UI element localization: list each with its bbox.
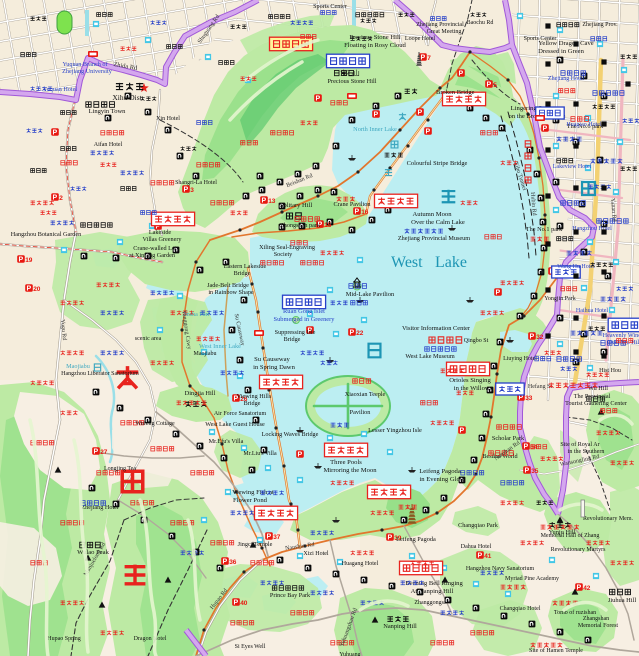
svg-text:Over the Calm Lake: Over the Calm Lake xyxy=(411,219,465,226)
svg-text:Villas Greenery: Villas Greenery xyxy=(143,236,183,243)
svg-text:Prince Bay Park: Prince Bay Park xyxy=(270,592,311,599)
svg-text:P: P xyxy=(373,112,378,119)
svg-text:P: P xyxy=(222,559,227,566)
svg-text:2: 2 xyxy=(59,195,63,202)
svg-text:P: P xyxy=(266,534,271,541)
svg-text:Leifeng Pagoda: Leifeng Pagoda xyxy=(419,468,461,475)
svg-text:Suppressing Isle: Suppressing Isle xyxy=(275,329,316,336)
svg-text:Bridge: Bridge xyxy=(284,336,301,343)
svg-text:P: P xyxy=(425,129,430,136)
svg-text:Zhejiang University: Zhejiang University xyxy=(62,68,113,75)
svg-text:37: 37 xyxy=(273,534,281,541)
svg-text:Floating in Rosy Cloud: Floating in Rosy Cloud xyxy=(344,42,406,49)
svg-text:in the Southern: in the Southern xyxy=(568,449,605,455)
svg-text:Xihu Dist.: Xihu Dist. xyxy=(112,93,143,102)
svg-text:P: P xyxy=(524,468,529,475)
svg-text:Memorial Hall of Zhang: Memorial Hall of Zhang xyxy=(541,532,600,539)
svg-text:Maojiabu: Maojiabu xyxy=(66,363,90,370)
svg-text:Zhangshan: Zhangshan xyxy=(583,616,609,622)
svg-text:5: 5 xyxy=(493,82,497,89)
svg-text:Jinsha Port: Jinsha Port xyxy=(183,312,210,318)
svg-text:Revolutionary Mem.: Revolutionary Mem. xyxy=(583,516,633,522)
svg-text:P: P xyxy=(315,96,320,103)
svg-text:Heavenly Wind: Heavenly Wind xyxy=(603,332,639,339)
svg-text:Wufeng Cottage: Wufeng Cottage xyxy=(135,420,175,427)
svg-text:Xin Hotel: Xin Hotel xyxy=(156,116,180,122)
svg-text:P: P xyxy=(93,449,98,456)
svg-text:Hangzhou Navy Sanatorium: Hangzhou Navy Sanatorium xyxy=(466,566,535,572)
svg-text:P: P xyxy=(183,187,188,194)
svg-text:at Xinfang Garden: at Xinfang Garden xyxy=(129,252,175,259)
svg-text:P: P xyxy=(459,428,464,435)
svg-text:P: P xyxy=(52,195,57,202)
svg-text:Zhanggongsi: Zhanggongsi xyxy=(414,600,446,606)
svg-text:in Evening Glow: in Evening Glow xyxy=(419,476,464,483)
svg-text:The Provincial: The Provincial xyxy=(574,393,611,400)
svg-text:Huagang Hotel: Huagang Hotel xyxy=(342,561,379,567)
svg-text:3: 3 xyxy=(190,187,194,194)
svg-text:Hangzhou Liberator Sanatorium: Hangzhou Liberator Sanatorium xyxy=(61,371,139,377)
svg-text:Revolutionary Martyrs: Revolutionary Martyrs xyxy=(551,547,606,553)
svg-text:Bridge: Bridge xyxy=(244,400,261,407)
svg-text:P: P xyxy=(233,600,238,607)
svg-text:Crane-walled Lot: Crane-walled Lot xyxy=(133,245,177,252)
svg-text:27: 27 xyxy=(100,449,108,456)
svg-text:Zhongshan park: Zhongshan park xyxy=(280,222,321,229)
svg-text:P: P xyxy=(18,257,23,264)
svg-text:Jingci Temple: Jingci Temple xyxy=(238,541,273,548)
svg-text:Mid-Lake Pavilion: Mid-Lake Pavilion xyxy=(346,291,395,298)
svg-text:33: 33 xyxy=(525,395,533,402)
svg-text:Tomb of ruzishan: Tomb of ruzishan xyxy=(554,609,596,616)
svg-text:35: 35 xyxy=(531,468,539,475)
svg-text:Zhejiang Provincial: Zhejiang Provincial xyxy=(416,22,464,28)
svg-text:Solitary Hill: Solitary Hill xyxy=(280,202,313,209)
svg-text:Dingjia Hill: Dingjia Hill xyxy=(185,390,216,397)
svg-text:Memorial Forest: Memorial Forest xyxy=(578,623,618,629)
svg-text:Dragon Hotel: Dragon Hotel xyxy=(134,636,167,642)
svg-text:P: P xyxy=(542,126,547,133)
svg-text:36: 36 xyxy=(229,559,237,566)
svg-text:Myriad Pine Academy: Myriad Pine Academy xyxy=(505,576,559,582)
svg-text:scenic area: scenic area xyxy=(135,336,162,342)
svg-text:Air Force Sanatorium: Air Force Sanatorium xyxy=(214,411,267,417)
svg-text:Ruan Gong Islet: Ruan Gong Islet xyxy=(283,308,325,315)
svg-text:Mr.Efu's Villa: Mr.Efu's Villa xyxy=(209,438,244,445)
svg-text:P: P xyxy=(349,330,354,337)
svg-text:Yongjin Park: Yongjin Park xyxy=(544,296,576,302)
svg-text:Loope Hotel: Loope Hotel xyxy=(405,36,435,42)
svg-text:Visitor Information Center: Visitor Information Center xyxy=(402,325,471,332)
svg-text:42: 42 xyxy=(583,585,591,592)
svg-text:P: P xyxy=(486,82,491,89)
svg-text:P: P xyxy=(261,198,266,205)
svg-text:40: 40 xyxy=(240,600,248,607)
svg-text:Site of Royal Ar: Site of Royal Ar xyxy=(560,441,599,448)
svg-text:Baochu Rd: Baochu Rd xyxy=(467,20,494,26)
svg-text:Su Causeway: Su Causeway xyxy=(254,356,290,363)
svg-text:Si Eyes Well: Si Eyes Well xyxy=(235,644,266,650)
svg-text:Viewing Hills: Viewing Hills xyxy=(237,393,272,400)
svg-text:P: P xyxy=(52,130,57,137)
svg-text:P: P xyxy=(523,444,528,451)
svg-text:Society: Society xyxy=(274,251,293,258)
svg-text:P: P xyxy=(477,553,482,560)
svg-text:Colourful Stripe Bridge: Colourful Stripe Bridge xyxy=(407,160,468,167)
svg-text:Liuying Hotel: Liuying Hotel xyxy=(503,356,537,362)
svg-text:Site of Hamen Temple: Site of Hamen Temple xyxy=(529,647,583,654)
svg-text:13: 13 xyxy=(268,198,276,205)
svg-text:15: 15 xyxy=(324,222,332,229)
svg-text:Xizi Hotel: Xizi Hotel xyxy=(303,551,328,557)
svg-text:P: P xyxy=(297,452,302,459)
svg-text:16: 16 xyxy=(361,209,369,216)
svg-text:Zhejiang Provincial Museum: Zhejiang Provincial Museum xyxy=(398,235,470,242)
svg-text:Hupao Spring: Hupao Spring xyxy=(47,636,81,642)
svg-text:Eastern Lakeside: Eastern Lakeside xyxy=(224,263,267,270)
svg-text:Three Pools: Three Pools xyxy=(330,459,362,466)
svg-text:Jiuhua Hill: Jiuhua Hill xyxy=(608,597,636,604)
svg-text:Lesser Yingzhou Isle: Lesser Yingzhou Isle xyxy=(368,427,422,434)
svg-text:West Inner Lake: West Inner Lake xyxy=(199,343,241,350)
svg-text:Orioles Singing: Orioles Singing xyxy=(449,377,491,384)
svg-text:Shangri-La Hotel: Shangri-La Hotel xyxy=(175,180,217,186)
svg-text:Qingbo St: Qingbo St xyxy=(464,338,489,344)
svg-text:Nanping Hill: Nanping Hill xyxy=(383,623,417,630)
svg-text:Lingyin Town: Lingyin Town xyxy=(89,108,127,115)
svg-text:Locking Waves Bridge: Locking Waves Bridge xyxy=(262,431,319,438)
svg-text:Changqiao Park: Changqiao Park xyxy=(458,522,499,529)
svg-text:P: P xyxy=(458,71,463,78)
svg-text:Dahua Hotel: Dahua Hotel xyxy=(461,544,492,550)
svg-text:Pavilion: Pavilion xyxy=(350,409,371,416)
svg-text:Zhejiang Hotel: Zhejiang Hotel xyxy=(548,76,584,82)
svg-text:Lakeview Hotel: Lakeview Hotel xyxy=(553,164,592,170)
svg-text:Flower Pond: Flower Pond xyxy=(233,497,268,504)
svg-text:West Lake Guest House: West Lake Guest House xyxy=(205,421,265,428)
svg-text:The No.1 park: The No.1 park xyxy=(526,226,563,233)
svg-text:41: 41 xyxy=(484,553,492,560)
svg-text:Huagiao Hotel: Huagiao Hotel xyxy=(566,122,601,128)
svg-text:Maojiabu: Maojiabu xyxy=(194,351,217,357)
svg-text:Aifan Hotel: Aifan Hotel xyxy=(94,141,123,148)
svg-text:P: P xyxy=(26,286,31,293)
svg-text:32: 32 xyxy=(536,334,544,341)
svg-text:Great Meeting: Great Meeting xyxy=(427,29,462,35)
svg-text:Lake: Lake xyxy=(435,254,467,271)
svg-text:Xiaoxian Teeple: Xiaoxian Teeple xyxy=(345,391,386,398)
svg-text:Yuhuang: Yuhuang xyxy=(339,652,360,656)
svg-text:Leifeng Pagoda: Leifeng Pagoda xyxy=(396,536,436,543)
svg-text:Lakeside: Lakeside xyxy=(149,229,172,236)
svg-text:Dressed in Green: Dressed in Green xyxy=(538,48,584,55)
svg-text:Bridge: Bridge xyxy=(234,270,251,277)
svg-text:19: 19 xyxy=(25,257,33,264)
svg-text:Crane Pavilion: Crane Pavilion xyxy=(334,201,371,208)
svg-text:Sports Center: Sports Center xyxy=(313,3,347,10)
svg-text:Zhejiang Prov.: Zhejiang Prov. xyxy=(582,22,618,28)
svg-text:Broken Bridge: Broken Bridge xyxy=(436,89,475,96)
svg-text:P: P xyxy=(354,209,359,216)
svg-text:P: P xyxy=(420,55,425,62)
svg-text:Mr.Liu's Villa: Mr.Liu's Villa xyxy=(243,451,277,457)
svg-text:Autumn Moon: Autumn Moon xyxy=(412,211,452,218)
svg-text:in Rainbow Shape: in Rainbow Shape xyxy=(208,289,254,296)
svg-text:P: P xyxy=(417,110,422,117)
svg-text:Yuquan Branch of: Yuquan Branch of xyxy=(62,61,108,68)
svg-text:Sports Center: Sports Center xyxy=(524,36,557,42)
svg-text:P: P xyxy=(529,334,534,341)
svg-text:Wang Hu Hotel: Wang Hu Hotel xyxy=(557,264,595,270)
svg-text:Scholar Park: Scholar Park xyxy=(492,435,525,442)
svg-text:Precious Stone Hill: Precious Stone Hill xyxy=(328,78,377,85)
svg-text:in Spring Dawn: in Spring Dawn xyxy=(253,364,295,371)
svg-text:Wu Hill: Wu Hill xyxy=(588,385,608,392)
svg-text:P: P xyxy=(576,585,581,592)
svg-text:Jade-Belt Bridge: Jade-Belt Bridge xyxy=(207,282,249,289)
svg-text:20: 20 xyxy=(33,286,41,293)
svg-text:P: P xyxy=(387,535,392,542)
svg-text:Viewing Fish at: Viewing Fish at xyxy=(232,489,274,496)
svg-text:Hangzhou Botanical Garden: Hangzhou Botanical Garden xyxy=(11,231,81,238)
svg-text:Haihua Hotel: Haihua Hotel xyxy=(576,308,608,314)
svg-text:At Nanping Hill: At Nanping Hill xyxy=(411,588,454,595)
svg-text:P: P xyxy=(495,290,500,297)
svg-text:Tourist Gathering Center: Tourist Gathering Center xyxy=(565,400,627,407)
svg-text:7: 7 xyxy=(427,55,431,62)
svg-text:North Inner Lake: North Inner Lake xyxy=(353,126,397,133)
svg-text:West Lake Museum: West Lake Museum xyxy=(405,353,455,360)
svg-text:Mirroring the Moon: Mirroring the Moon xyxy=(323,467,377,474)
svg-text:Zhejiang Hotel: Zhejiang Hotel xyxy=(81,504,119,511)
svg-text:Changqiao Hotel: Changqiao Hotel xyxy=(500,606,541,612)
svg-text:Longjing Tea: Longjing Tea xyxy=(104,466,136,472)
svg-text:West: West xyxy=(391,254,423,271)
svg-text:Hist Hou: Hist Hou xyxy=(599,368,621,374)
svg-text:22: 22 xyxy=(356,330,364,337)
svg-text:Submerged in Greenery: Submerged in Greenery xyxy=(274,316,336,323)
